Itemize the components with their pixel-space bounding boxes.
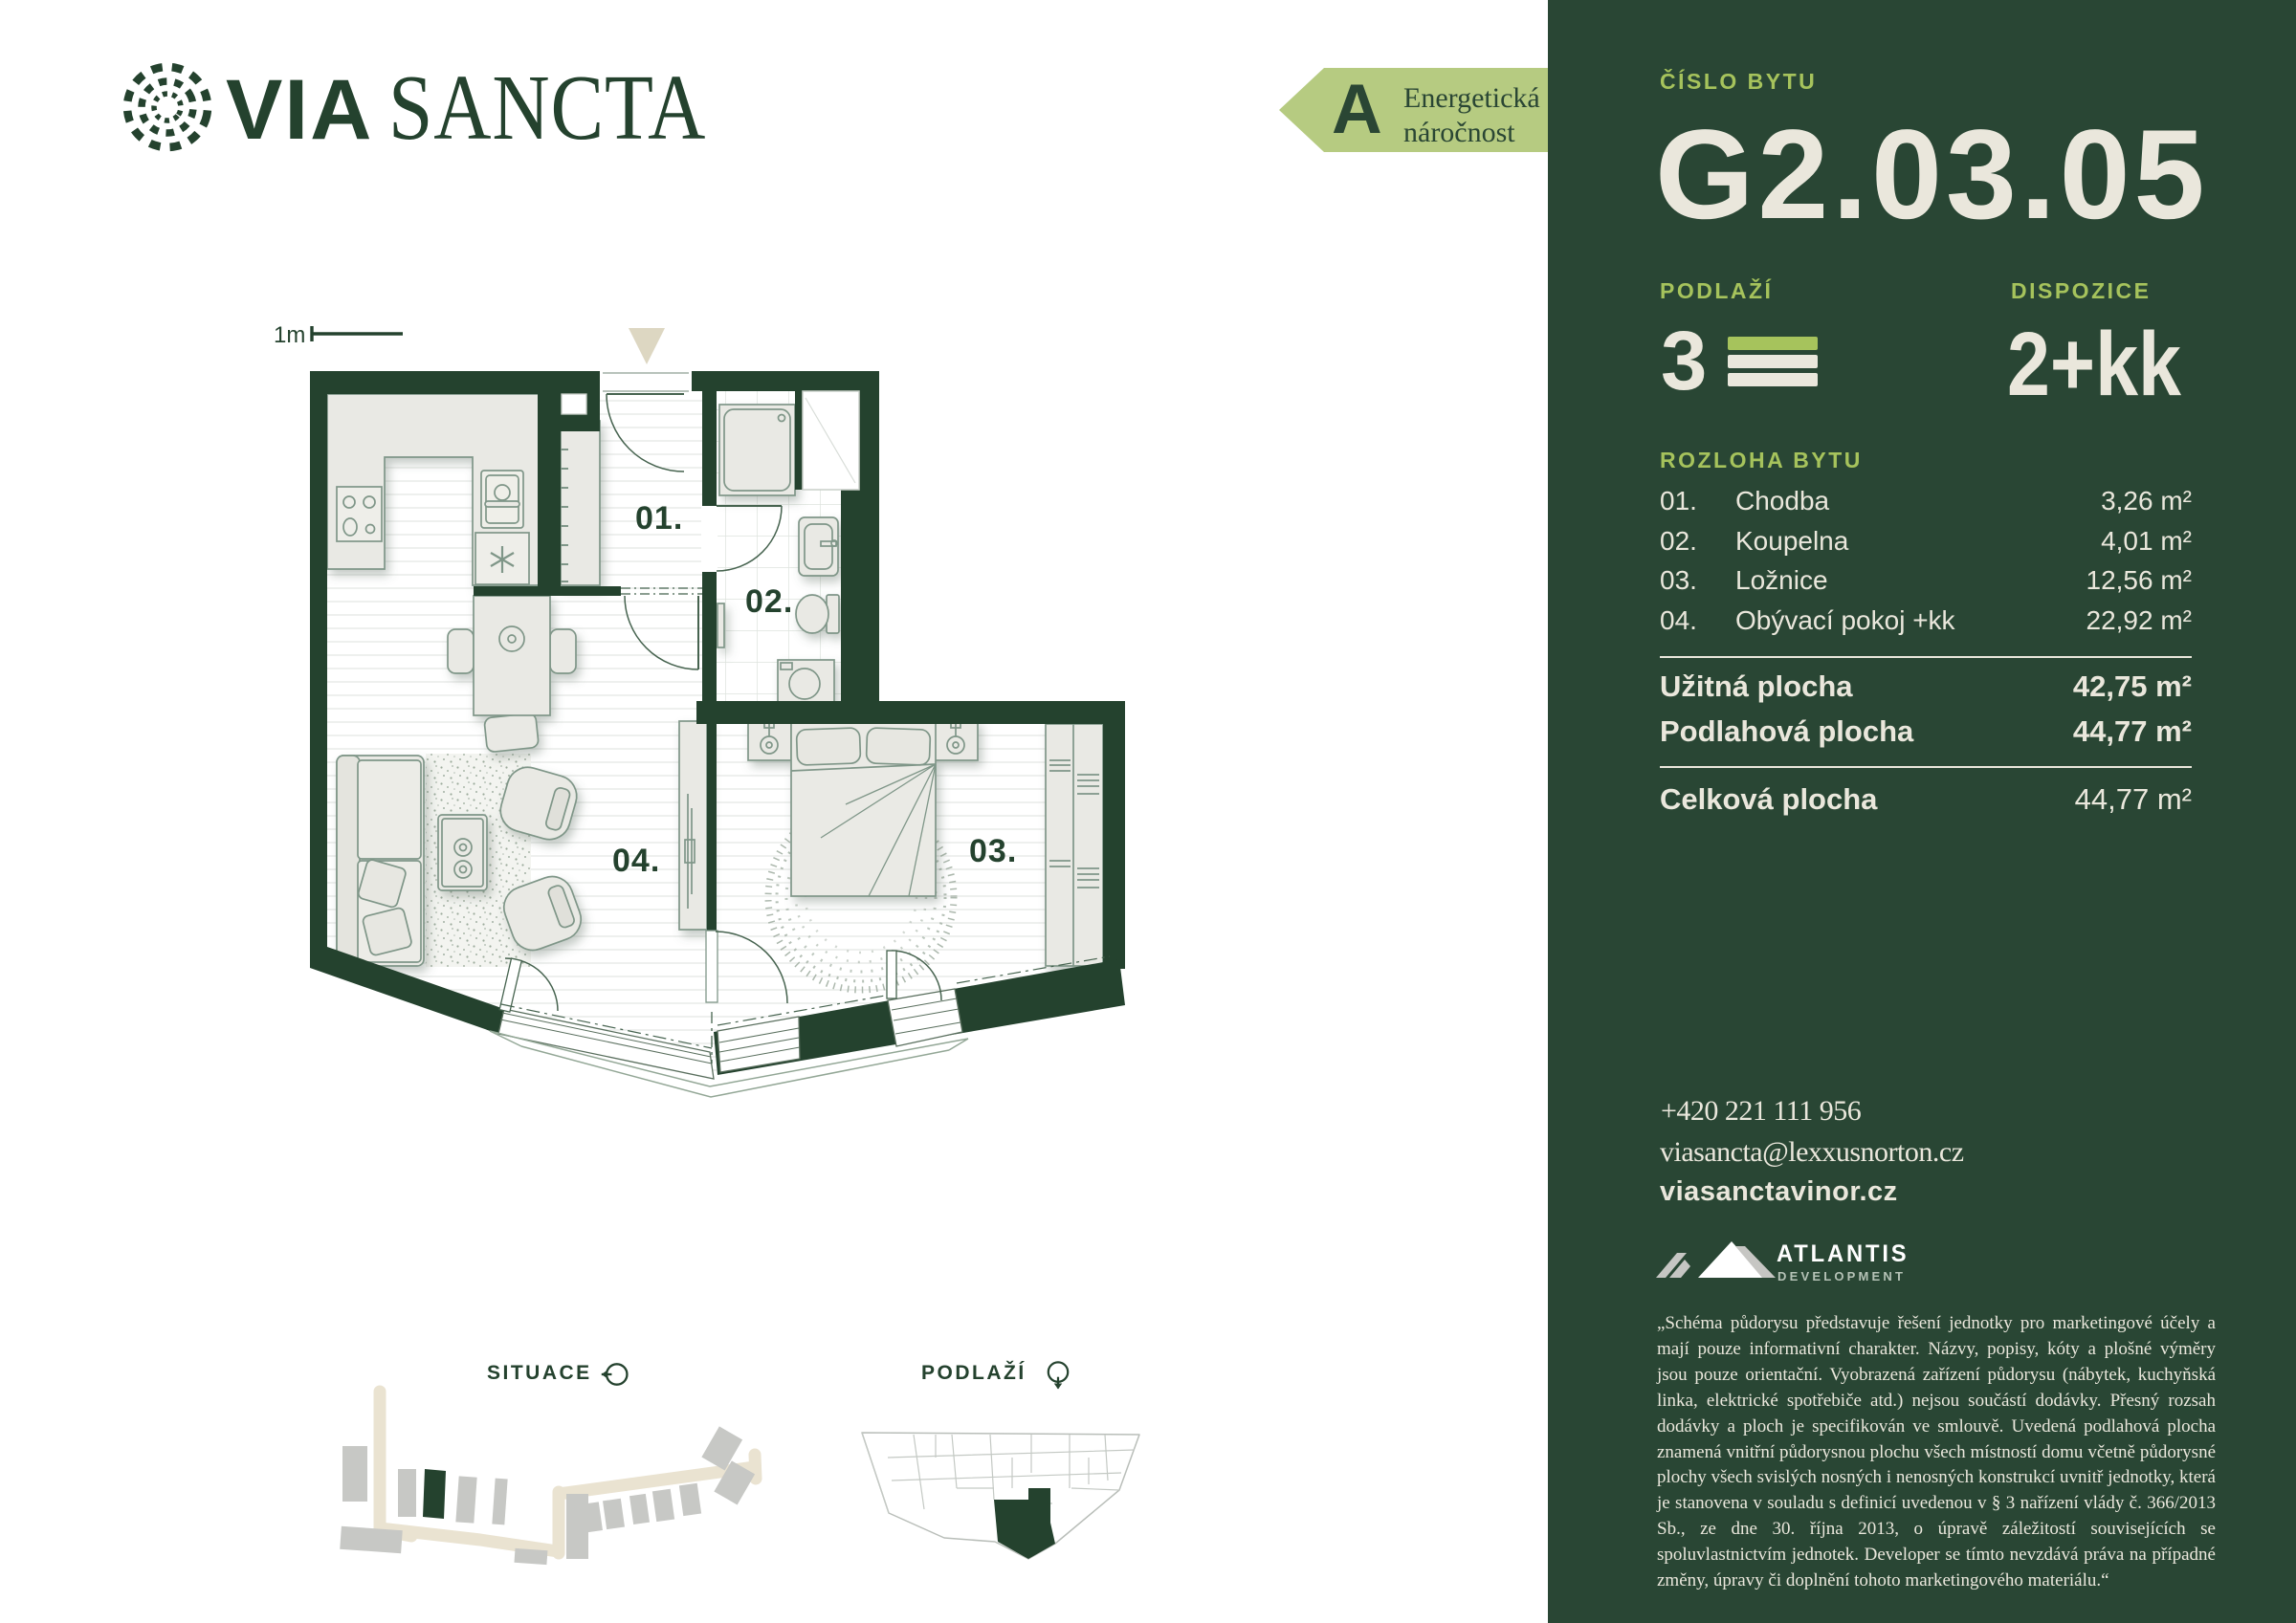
svg-text:01.: 01. (635, 500, 683, 537)
svg-text:1m: 1m (274, 322, 305, 348)
svg-text:02.: 02. (745, 583, 793, 620)
svg-text:04.: 04. (612, 843, 660, 879)
svg-text:03.: 03. (969, 833, 1017, 869)
